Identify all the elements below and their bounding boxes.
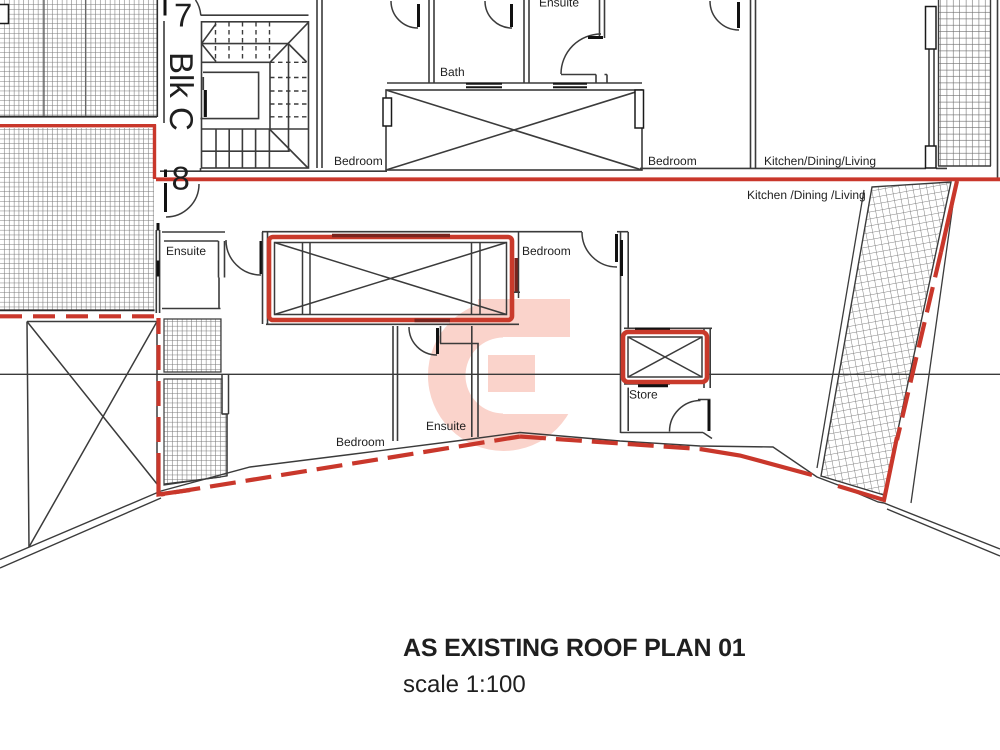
svg-text:8: 8 bbox=[172, 160, 190, 197]
svg-text:Kitchen/Dining/Living: Kitchen/Dining/Living bbox=[764, 154, 876, 168]
svg-text:Bedroom: Bedroom bbox=[334, 154, 383, 168]
svg-text:Bedroom: Bedroom bbox=[648, 154, 697, 168]
svg-text:Kitchen /Dining /Living: Kitchen /Dining /Living bbox=[747, 188, 866, 202]
svg-text:Bath: Bath bbox=[440, 65, 465, 79]
svg-text:Ensuite: Ensuite bbox=[166, 244, 206, 258]
svg-text:AS EXISTING ROOF PLAN 01: AS EXISTING ROOF PLAN 01 bbox=[403, 634, 746, 662]
svg-text:7: 7 bbox=[174, 0, 192, 34]
svg-text:Store: Store bbox=[629, 388, 658, 402]
svg-text:Ensuite: Ensuite bbox=[426, 419, 466, 433]
svg-text:Blk C: Blk C bbox=[163, 52, 200, 131]
svg-text:Bedroom: Bedroom bbox=[522, 244, 571, 258]
svg-text:scale 1:100: scale 1:100 bbox=[403, 671, 526, 698]
svg-text:Bedroom: Bedroom bbox=[336, 435, 385, 449]
svg-text:Ensuite: Ensuite bbox=[539, 0, 579, 10]
